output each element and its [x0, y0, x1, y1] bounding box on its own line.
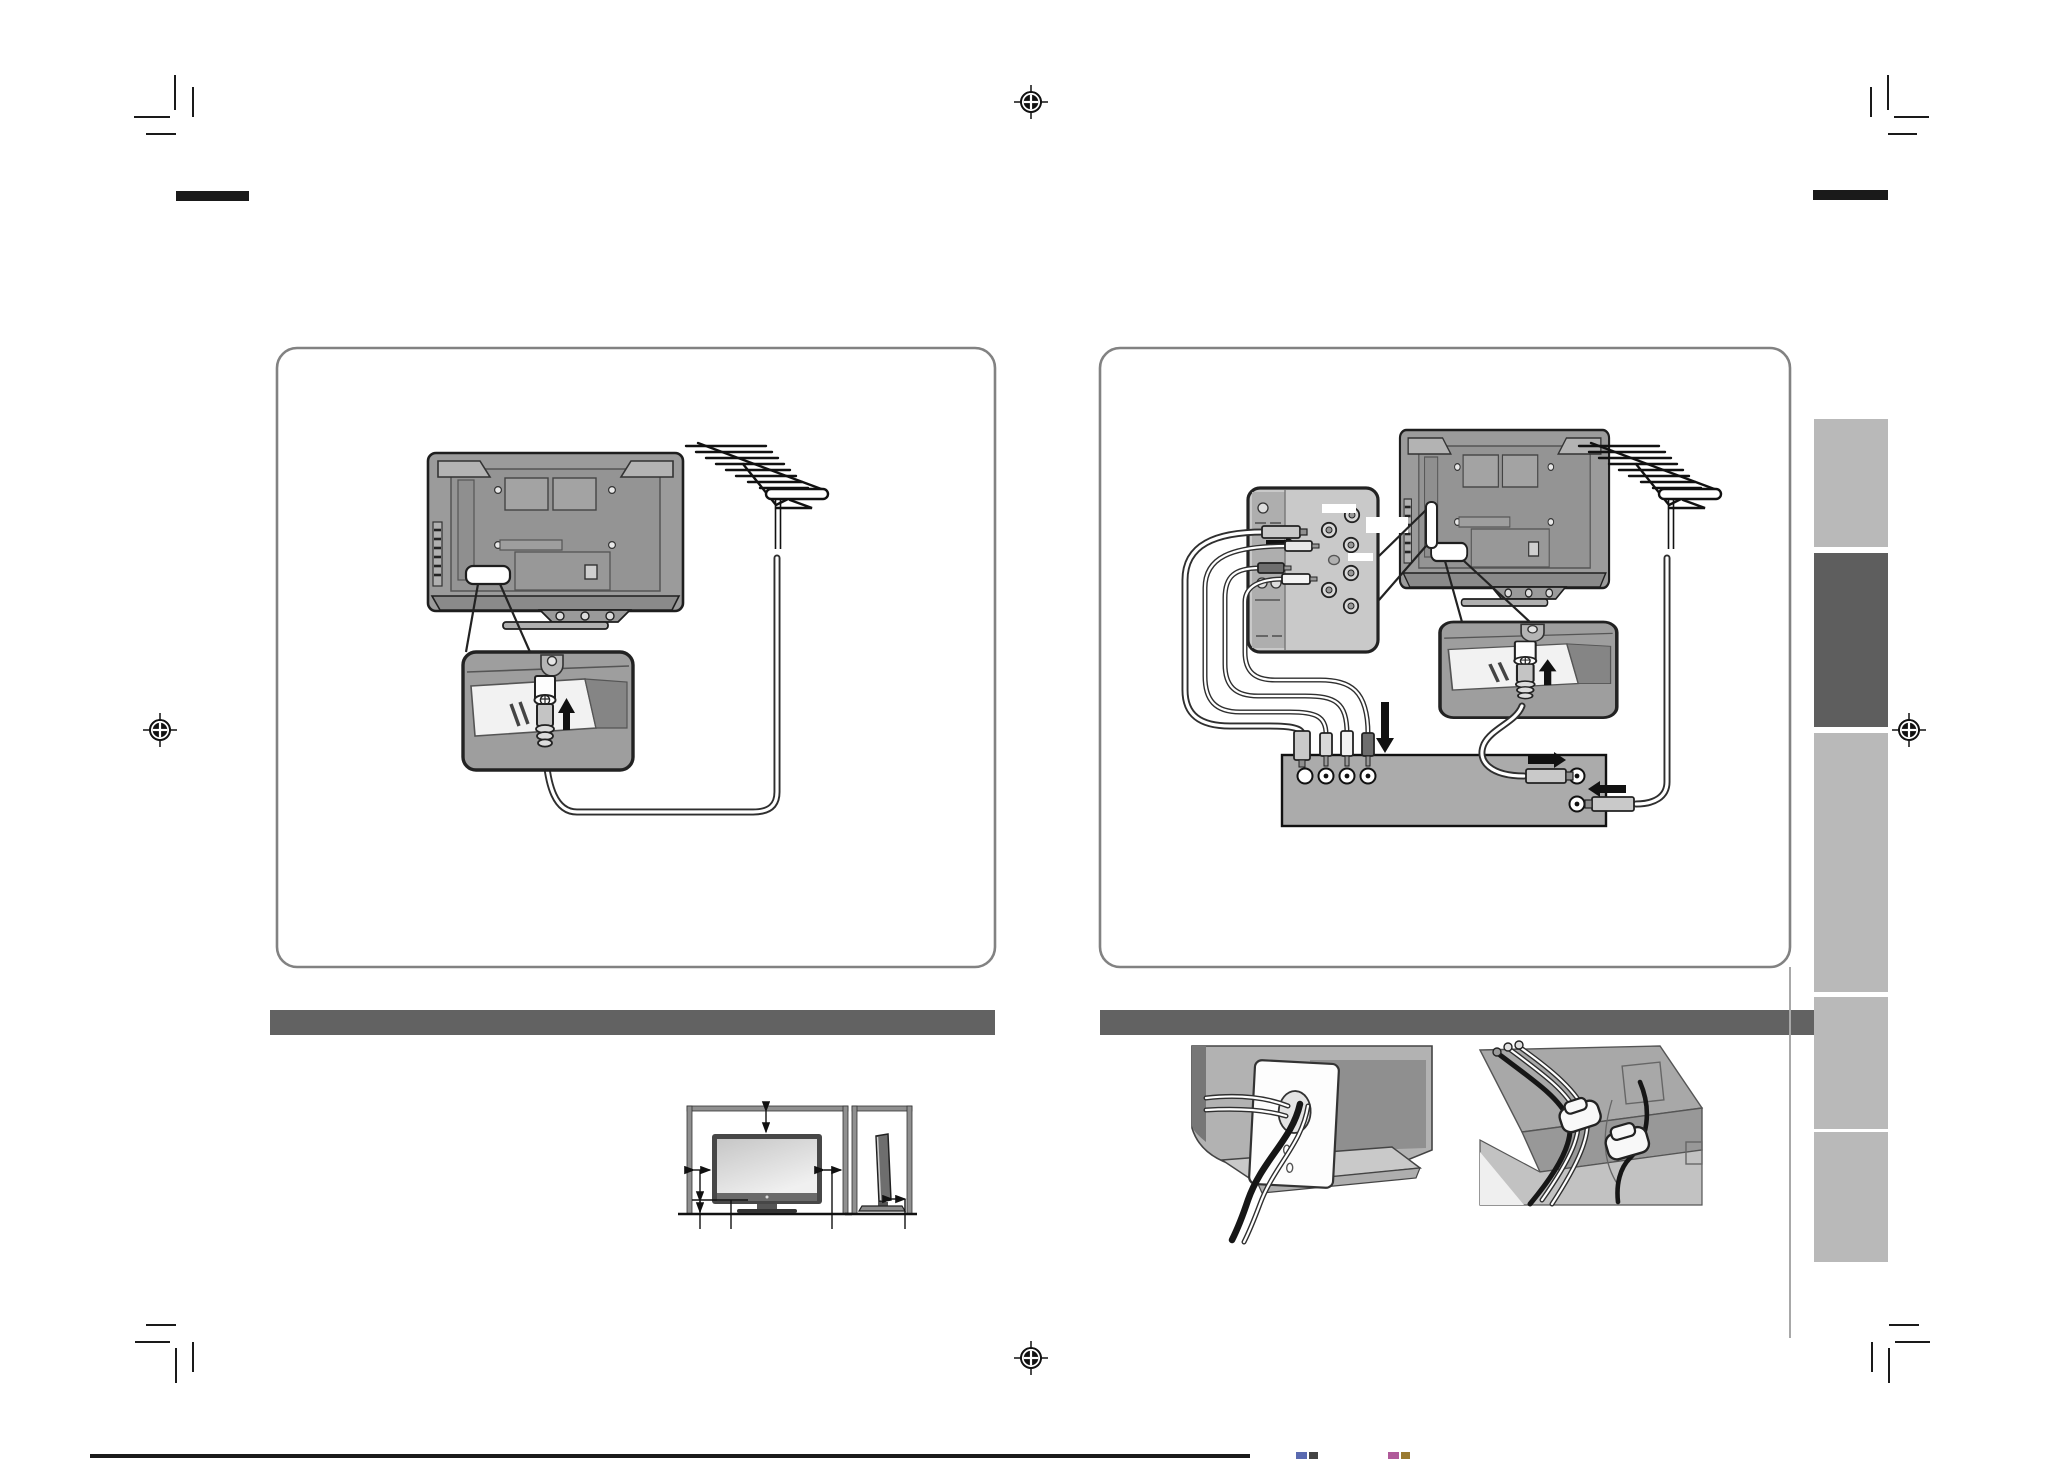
left-figure-panel: [277, 348, 995, 967]
cable-cover-illustration: [1192, 1046, 1432, 1242]
crop-marks-top-left: [134, 75, 193, 134]
crop-marks-bottom-left: [135, 1325, 193, 1383]
panel-label-chip: [1348, 553, 1373, 561]
crop-marks-bottom-right: [1872, 1325, 1930, 1383]
registration-target-icon: [1892, 713, 1926, 747]
panel-label-chip: [1366, 517, 1408, 533]
side-terminal-label: [1426, 502, 1437, 548]
index-tab-active: [1814, 553, 1888, 727]
manual-page: [0, 0, 2065, 1459]
registration-target-icon: [1014, 85, 1048, 119]
antenna-jack-inset: [463, 652, 633, 770]
antenna-jack-inset: [1440, 622, 1617, 718]
cable-clamp-illustration: [1480, 1041, 1702, 1205]
color-control-patches: [1296, 1452, 1410, 1459]
index-tab: [1814, 1132, 1888, 1262]
right-figure-panel: [1100, 348, 1790, 967]
crop-marks-top-right: [1871, 75, 1929, 134]
tv-rear-illustration: [428, 453, 683, 629]
bottom-trim-rule: [90, 1454, 1250, 1458]
chapter-index-tabs: [1814, 419, 1888, 1262]
coax-plug: [1526, 769, 1566, 783]
index-tab: [1814, 419, 1888, 547]
left-figure-border: [277, 348, 995, 967]
index-tab: [1814, 997, 1888, 1129]
ink-bar-top-right: [1813, 190, 1888, 200]
page-artwork: [0, 0, 2065, 1459]
clearance-diagram: [678, 1106, 917, 1229]
ink-bar-top-left: [176, 191, 249, 201]
panel-label-chip: [1322, 504, 1356, 513]
index-tab: [1814, 733, 1888, 992]
section-bar-right: [1100, 1010, 1816, 1035]
registration-target-icon: [1014, 1341, 1048, 1375]
section-bar-left: [270, 1010, 995, 1035]
coax-plug: [1592, 797, 1634, 811]
registration-target-icon: [143, 713, 177, 747]
